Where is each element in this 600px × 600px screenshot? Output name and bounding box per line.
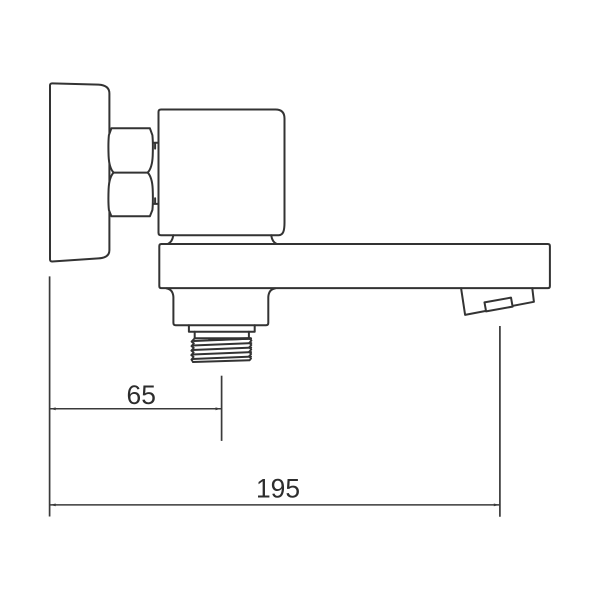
svg-text:65: 65 bbox=[127, 380, 156, 410]
svg-text:195: 195 bbox=[256, 473, 300, 503]
